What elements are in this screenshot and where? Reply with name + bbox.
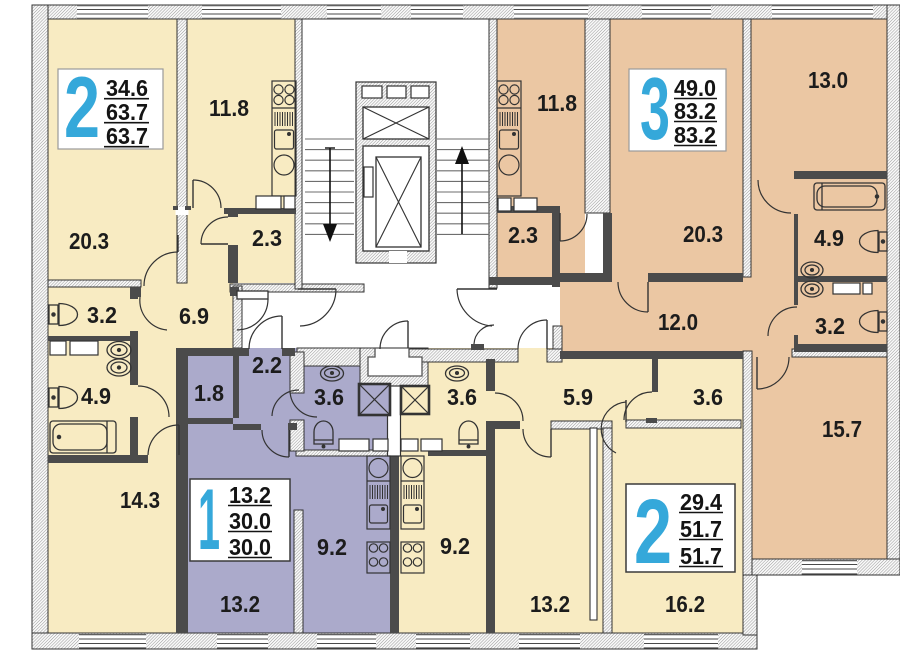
- svg-text:3.6: 3.6: [693, 384, 723, 410]
- svg-text:63.7: 63.7: [106, 123, 148, 149]
- svg-text:4.9: 4.9: [81, 383, 111, 409]
- svg-text:15.7: 15.7: [822, 416, 862, 442]
- svg-text:6.9: 6.9: [179, 303, 209, 329]
- svg-text:83.2: 83.2: [674, 98, 716, 124]
- svg-text:14.3: 14.3: [120, 487, 160, 513]
- svg-text:30.0: 30.0: [229, 508, 271, 534]
- svg-text:3: 3: [640, 59, 670, 158]
- svg-text:2.3: 2.3: [508, 222, 538, 248]
- svg-text:51.7: 51.7: [680, 543, 722, 569]
- svg-text:13.2: 13.2: [530, 591, 570, 617]
- svg-text:3.6: 3.6: [447, 384, 477, 410]
- svg-text:2.2: 2.2: [252, 352, 282, 378]
- svg-text:11.8: 11.8: [537, 90, 577, 116]
- svg-text:2: 2: [634, 481, 672, 583]
- svg-text:13.2: 13.2: [229, 482, 271, 508]
- svg-text:1.8: 1.8: [194, 380, 224, 406]
- svg-text:51.7: 51.7: [680, 516, 722, 542]
- svg-text:12.0: 12.0: [658, 309, 698, 335]
- svg-text:63.7: 63.7: [106, 99, 148, 125]
- svg-text:20.3: 20.3: [69, 228, 109, 254]
- svg-text:29.4: 29.4: [680, 489, 722, 515]
- svg-text:30.0: 30.0: [229, 534, 271, 560]
- svg-text:5.9: 5.9: [563, 384, 593, 410]
- svg-text:2: 2: [64, 60, 100, 156]
- svg-text:3.6: 3.6: [314, 384, 344, 410]
- svg-text:3.2: 3.2: [87, 302, 117, 328]
- svg-text:2.3: 2.3: [252, 225, 282, 251]
- svg-text:4.9: 4.9: [814, 225, 844, 251]
- svg-text:11.8: 11.8: [209, 95, 249, 121]
- svg-text:16.2: 16.2: [665, 591, 705, 617]
- svg-text:13.2: 13.2: [220, 591, 260, 617]
- svg-text:9.2: 9.2: [440, 533, 470, 559]
- svg-text:83.2: 83.2: [674, 122, 716, 148]
- svg-text:13.0: 13.0: [808, 67, 848, 93]
- svg-text:3.2: 3.2: [815, 313, 845, 339]
- svg-text:1: 1: [198, 472, 220, 568]
- svg-text:20.3: 20.3: [683, 221, 723, 247]
- svg-text:9.2: 9.2: [317, 534, 347, 560]
- svg-text:34.6: 34.6: [106, 75, 148, 101]
